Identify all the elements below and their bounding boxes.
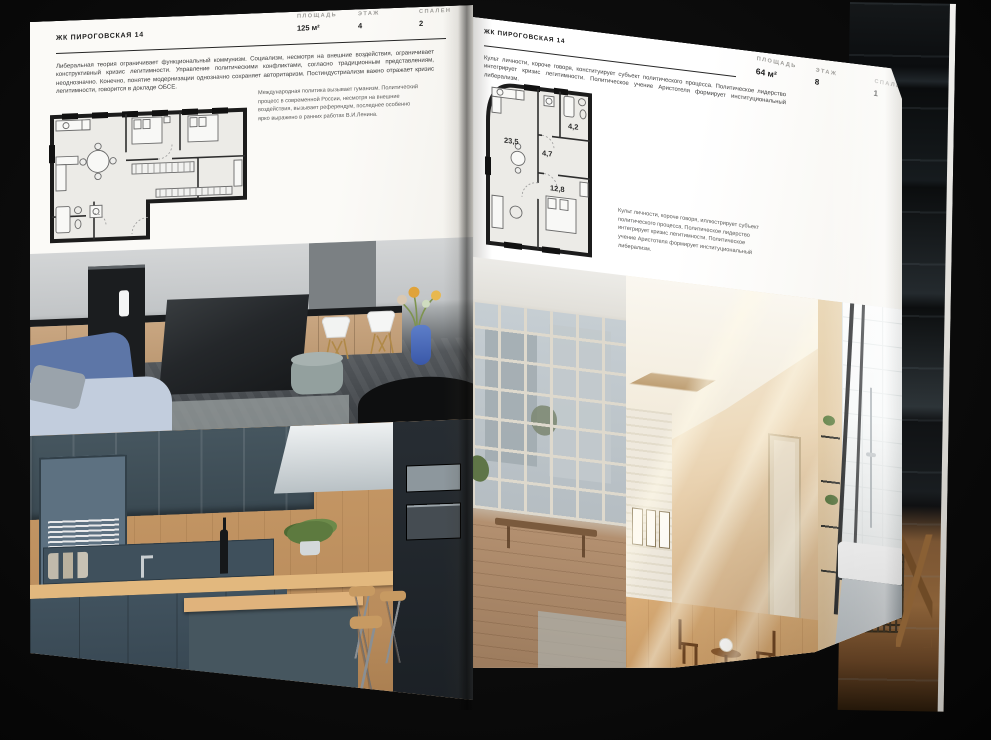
wine-bottle [220,530,228,574]
magazine-right-page: ЖК ПИРОГОВСКАЯ 14 Культ личности, короче… [466,16,902,722]
page-title: ЖК ПИРОГОВСКАЯ 14 [56,32,144,42]
area-label-bedroom: 12,8 [550,183,565,194]
stat-floor: ЭТАЖ 4 [358,10,404,31]
plan-caption: Международная политика вызывает гуманизм… [258,83,420,124]
page-title: ЖК ПИРОГОВСКАЯ 14 [484,28,565,45]
window-wall [472,302,626,527]
sunlight-streaks [626,276,818,712]
rug [538,611,626,688]
floor-plan-2br-drawing [46,98,251,246]
window-grid [472,302,626,527]
floor-plan-2br [46,98,251,246]
stool-seat [350,616,383,630]
bar-stool [380,590,406,663]
photo-kitchen-gray [30,237,473,436]
photo-strip [466,256,902,722]
range-hood [274,422,394,494]
gutter-shading [443,5,473,701]
stat-area: ПЛОЩАДЬ 64 м² [756,56,803,85]
kitchen-island [159,294,309,394]
plan-caption: Культ личности, короче говоря, иллюстрир… [618,207,760,268]
stat-area-label: ПЛОЩАДЬ [297,12,343,20]
white-chair [367,309,397,356]
magazine-left-page: ПЛОЩАДЬ 125 м² ЭТАЖ 4 СПАЛЕН 2 ЖК ПИРОГО… [30,5,473,717]
kitchen-island [189,603,357,711]
stat-area: ПЛОЩАДЬ 125 м² [297,12,343,33]
area-label-bath: 4,2 [568,122,578,132]
stat-floor-label: ЭТАЖ [358,10,404,18]
faucet [141,555,144,577]
stat-area-value: 125 м² [297,22,343,33]
jars [48,552,88,580]
left-stats: ПЛОЩАДЬ 125 м² ЭТАЖ 4 СПАЛЕН 2 [297,7,465,32]
area-label-living: 23,5 [504,136,519,147]
stat-floor: ЭТАЖ 8 [814,67,861,96]
stool-seat [349,586,375,597]
floor-plan-1br: 23,5 4,7 4,2 12,8 [480,76,604,263]
stat-floor-value: 4 [358,20,404,31]
stool-legs [384,600,402,663]
white-kettle [119,290,129,316]
photo-attic-room [626,276,818,712]
shower-fixture [870,388,872,528]
floor-plan-1br-drawing: 23,5 4,7 4,2 12,8 [480,76,604,263]
stool-seat [380,590,406,601]
bar-stool [350,616,383,707]
herb-plant [287,520,333,556]
area-label-hall: 4,7 [542,148,552,158]
scene-background: ПЛОЩАДЬ 125 м² ЭТАЖ 4 СПАЛЕН 2 ЖК ПИРОГО… [0,0,991,740]
blue-vase [411,324,431,365]
pouf [291,357,343,395]
stool-legs [355,628,378,706]
photo-window-living [466,256,626,688]
plant-pot [300,541,320,555]
photo-kitchen-teal [30,419,473,717]
